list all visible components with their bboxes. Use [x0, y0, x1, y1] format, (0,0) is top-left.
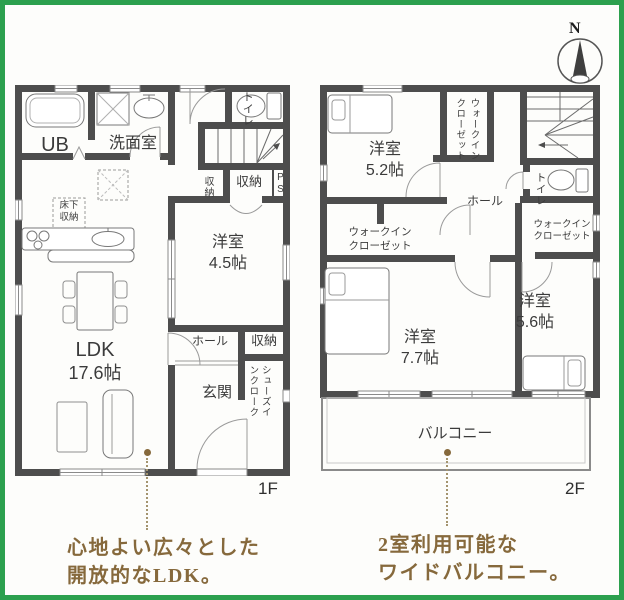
- bedroom45-name: 洋室: [188, 233, 268, 254]
- wic-right-line1: ウォークイン: [518, 219, 606, 231]
- pipe-space-label: PS: [274, 171, 287, 197]
- ldk-size: 17.6帖: [45, 362, 145, 385]
- room-washroom-label: 洗面室: [95, 134, 171, 155]
- compass-icon: [552, 32, 608, 88]
- ldk-caption-line2: 開放的なLDK。: [67, 562, 261, 590]
- floor2-tag: 2F: [565, 479, 585, 499]
- bedroom45-size: 4.5帖: [188, 254, 268, 275]
- underfloor-storage-label: 床下 収納: [53, 200, 85, 225]
- wic-left-line2: クローゼット: [334, 240, 426, 254]
- wic-top-label: ウォークインクローゼット: [452, 93, 481, 165]
- wic-left-line1: ウォークイン: [334, 226, 426, 240]
- floorplan-page: N: [0, 0, 624, 600]
- bedroom56-size: 5.6帖: [495, 313, 575, 334]
- ldk-leader-dot: [144, 449, 151, 456]
- ldk-name: LDK: [45, 337, 145, 363]
- floor1-tag: 1F: [258, 479, 278, 499]
- room-toilet1f-label: トイレ: [240, 89, 254, 129]
- balcony-caption-line1: 2室利用可能な: [378, 531, 571, 559]
- bedroom52-name: 洋室: [345, 140, 425, 161]
- storage-stairs-label: 収納: [201, 171, 214, 203]
- floor1-stairs: [218, 129, 283, 163]
- balcony-label: バルコニー: [400, 424, 510, 444]
- bedroom77-name: 洋室: [380, 328, 460, 349]
- entrance-label: 玄関: [188, 383, 246, 403]
- storage-band-label: 収納: [226, 174, 272, 191]
- balcony-leader-line: [446, 458, 448, 526]
- balcony-leader-dot: [444, 449, 451, 456]
- hall2f-label: ホール: [455, 194, 515, 210]
- floor2-stairs: [527, 92, 593, 158]
- bedroom52-size: 5.2帖: [345, 161, 425, 182]
- compass-north-label: N: [569, 20, 581, 38]
- storage-hall-label: 収納: [240, 333, 288, 350]
- ldk-caption-line1: 心地よい広々とした: [67, 534, 261, 562]
- wic-right-line2: クローゼット: [518, 231, 606, 243]
- ldk-caption: 心地よい広々とした 開放的なLDK。: [67, 534, 261, 590]
- room-toilet2f-label: トイレ: [533, 169, 547, 209]
- bedroom56-name: 洋室: [495, 292, 575, 313]
- hall1f-label: ホール: [180, 334, 240, 350]
- bedroom77-size: 7.7帖: [380, 349, 460, 370]
- balcony-caption: 2室利用可能な ワイドバルコニー。: [378, 531, 571, 587]
- balcony-caption-line2: ワイドバルコニー。: [378, 559, 571, 587]
- shoes-in-closet-label: シューズインクローク: [246, 360, 271, 422]
- room-ub-label: UB: [25, 132, 85, 158]
- ldk-leader-line: [146, 458, 148, 530]
